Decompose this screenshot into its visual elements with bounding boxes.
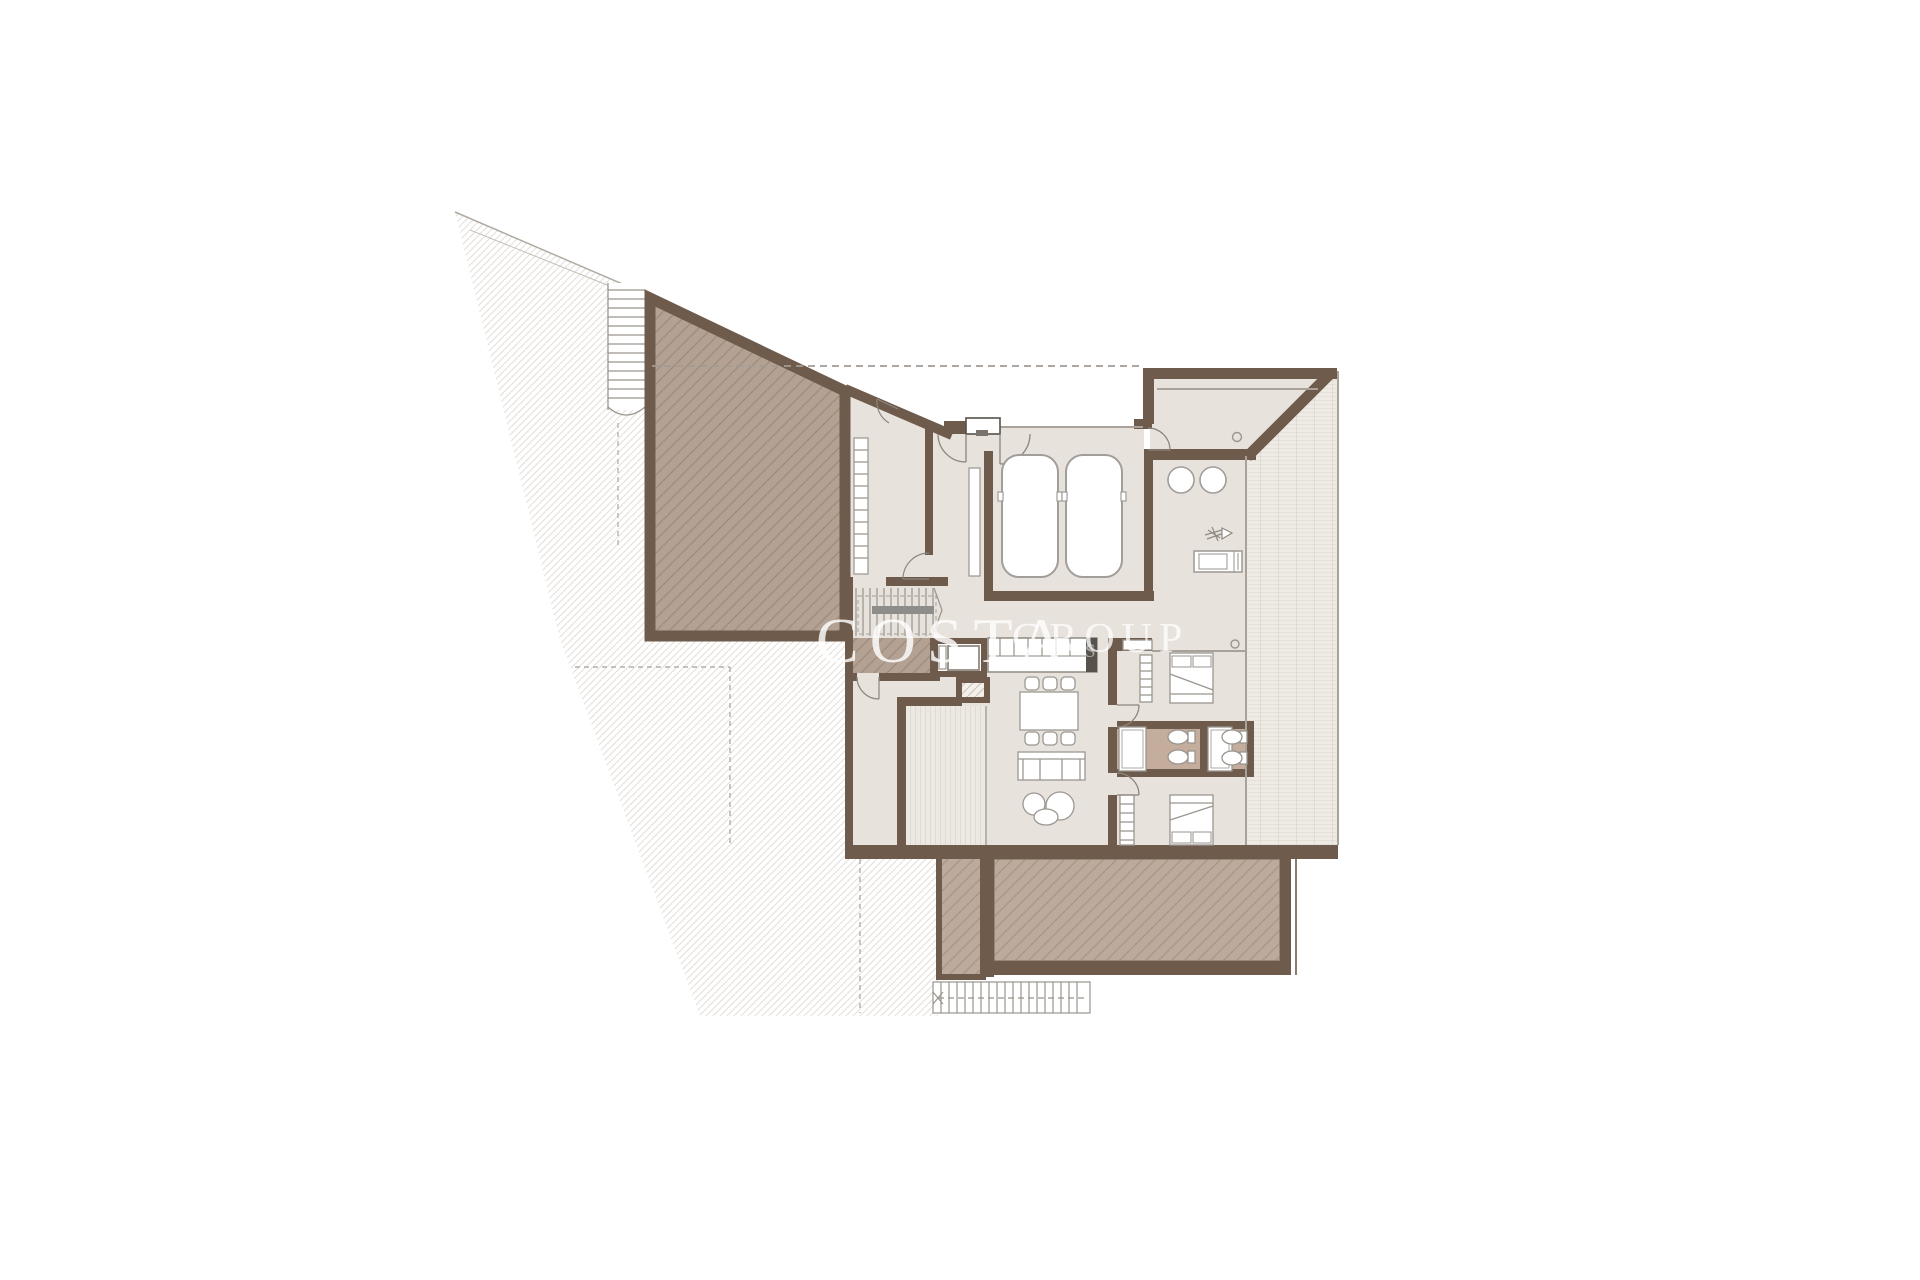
- bath-right-wall: [1246, 721, 1254, 777]
- bidet-icon: [1222, 751, 1242, 765]
- car-2-mirror-r: [1121, 492, 1126, 501]
- toilet-icon: [1168, 730, 1188, 744]
- toilet-1-tank: [1188, 731, 1195, 743]
- dining-set: [1020, 677, 1078, 745]
- porch-bottom-wall: [1146, 449, 1256, 460]
- dining-table: [1020, 692, 1078, 730]
- watermark-fragment: S: [1085, 641, 1099, 662]
- deck-steps: [933, 982, 1090, 1013]
- garage-left-wall: [984, 451, 993, 600]
- car-1-mirror-l: [998, 492, 1003, 501]
- porch-left-wall: [1143, 368, 1154, 424]
- car-1-mirror-r: [1057, 492, 1062, 501]
- car-2: [1066, 455, 1122, 577]
- bedroom2-wardrobe: [1120, 795, 1134, 845]
- bidet-icon: [1168, 750, 1188, 764]
- car-1: [1002, 455, 1058, 577]
- pillow: [1193, 656, 1211, 667]
- bed-2: [1170, 795, 1213, 845]
- deck-left-wall: [986, 859, 994, 977]
- garage-bottom-wall: [984, 591, 1154, 601]
- deck-area: [994, 859, 1280, 961]
- car-2-mirror-l: [1062, 492, 1067, 501]
- entry-stub-wall: [944, 421, 968, 434]
- pouf: [1034, 809, 1058, 825]
- shower-1-tray: [1122, 730, 1143, 768]
- chair: [1043, 677, 1057, 690]
- bidet-1-tank: [1188, 751, 1195, 763]
- machine-1: [1168, 467, 1194, 493]
- chair: [1043, 732, 1057, 745]
- roof-terrace: [650, 298, 845, 636]
- dressing-right-wall: [925, 425, 933, 555]
- porch-top-wall: [1143, 368, 1337, 379]
- planter-right-wall: [980, 859, 986, 980]
- stair-top-wall: [886, 577, 948, 586]
- corridor-wall-c: [1108, 795, 1117, 847]
- chair: [1025, 732, 1039, 745]
- chair: [1061, 677, 1075, 690]
- deck-top-wall: [845, 845, 1338, 859]
- planter-left-wall: [936, 859, 942, 980]
- light-well-decking: [906, 706, 986, 845]
- shaft-right-wall: [984, 677, 990, 703]
- patio-left-wall: [1144, 449, 1153, 600]
- chair: [1061, 732, 1075, 745]
- deck-right-wall: [1280, 859, 1291, 975]
- watermark-suffix: GROUP: [1012, 616, 1189, 662]
- wardrobe-strip: [854, 438, 868, 574]
- lightwell-top-wall: [897, 697, 962, 706]
- entry-stop: [976, 430, 988, 436]
- chair: [1025, 677, 1039, 690]
- corridor-wall-b: [1108, 727, 1117, 773]
- pillow: [1193, 832, 1211, 843]
- sun-lounger: [1194, 551, 1242, 572]
- light-well: [906, 683, 986, 845]
- floor-plan-svg: COSTA GROUP S: [0, 0, 1920, 1280]
- planter-bottom-wall: [936, 974, 986, 980]
- planter: [942, 859, 980, 974]
- floor-plan-image: COSTA GROUP S: [0, 0, 1920, 1280]
- deck-bottom-wall: [986, 961, 1291, 975]
- sofa: [1018, 752, 1085, 780]
- roof-terrace-area: [650, 298, 845, 636]
- toilet-icon: [1222, 730, 1242, 744]
- shaft: [962, 683, 984, 697]
- lounger-cushion: [1199, 554, 1227, 569]
- hall-pocket-door: [969, 468, 980, 576]
- lightwell-left-wall: [897, 697, 906, 847]
- machine-2: [1200, 467, 1226, 493]
- pillow: [1172, 832, 1191, 843]
